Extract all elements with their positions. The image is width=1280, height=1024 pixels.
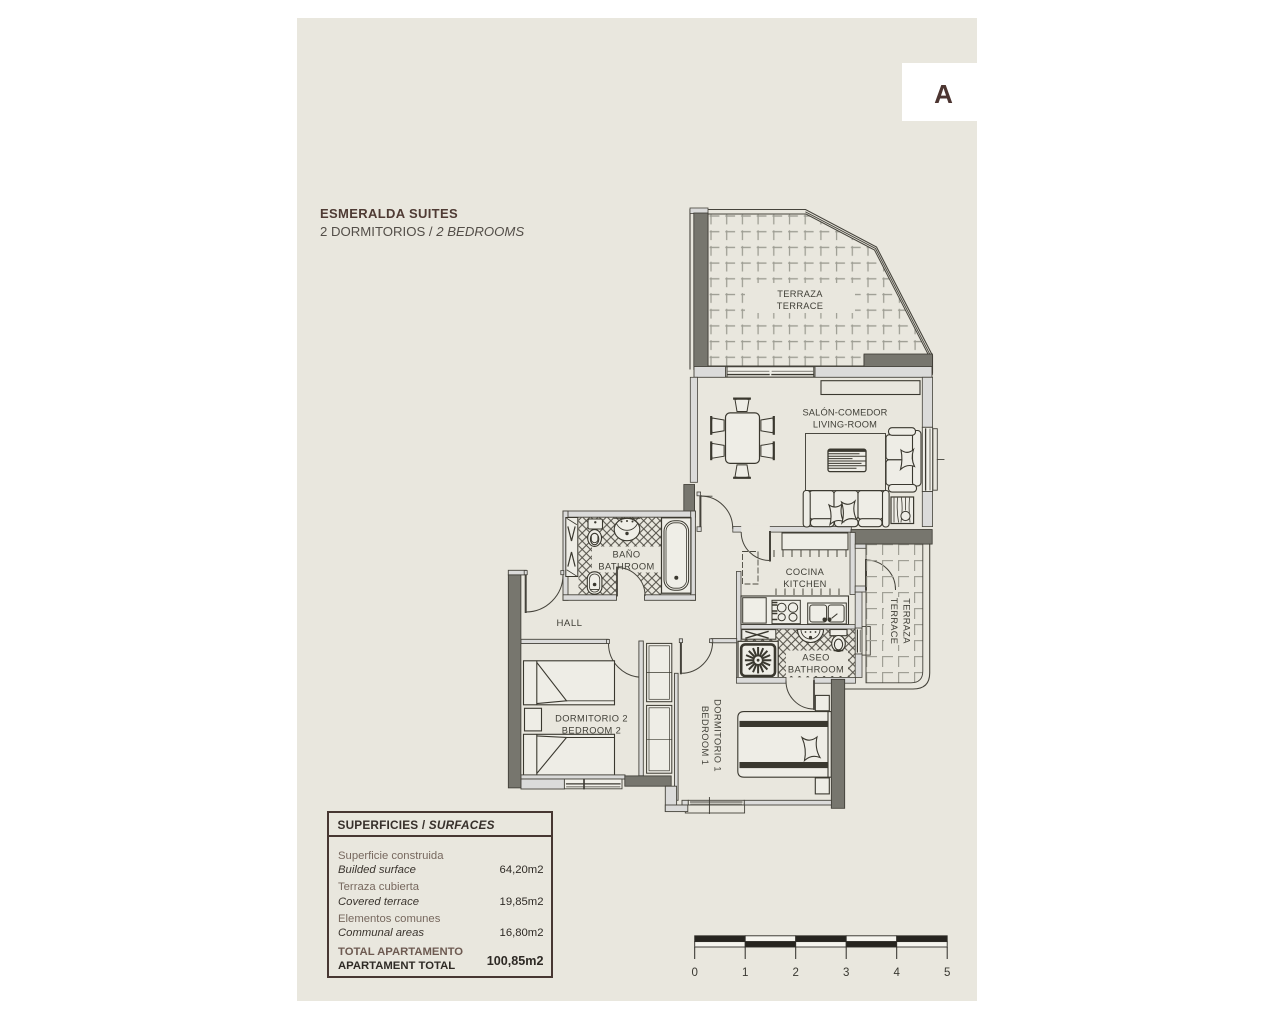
svg-text:BATHROOM: BATHROOM [788, 665, 844, 675]
svg-text:DORMITORIO 2: DORMITORIO 2 [555, 714, 628, 724]
svg-text:TERRAZA: TERRAZA [902, 598, 912, 644]
svg-text:COCINA: COCINA [786, 567, 825, 577]
svg-text:TERRACE: TERRACE [777, 301, 824, 311]
svg-text:BAÑO: BAÑO [613, 550, 641, 560]
svg-text:DORMITORIO 1: DORMITORIO 1 [713, 699, 723, 772]
svg-text:LIVING-ROOM: LIVING-ROOM [813, 420, 877, 430]
svg-text:2: 2 [792, 967, 798, 979]
svg-text:TERRAZA: TERRAZA [777, 289, 823, 299]
svg-text:BATHROOM: BATHROOM [598, 562, 654, 572]
svg-text:0: 0 [691, 967, 697, 979]
svg-text:ASEO: ASEO [802, 653, 829, 663]
svg-text:4: 4 [893, 967, 900, 979]
svg-text:BEDROOM 2: BEDROOM 2 [562, 726, 621, 736]
svg-text:BEDROOM 1: BEDROOM 1 [700, 706, 710, 765]
svg-text:5: 5 [944, 967, 950, 979]
svg-text:KITCHEN: KITCHEN [783, 579, 827, 589]
svg-text:1: 1 [742, 967, 748, 979]
svg-text:HALL: HALL [557, 618, 583, 629]
svg-text:TERRACE: TERRACE [889, 598, 899, 645]
svg-text:3: 3 [843, 967, 849, 979]
svg-text:SALÓN-COMEDOR: SALÓN-COMEDOR [802, 408, 887, 418]
